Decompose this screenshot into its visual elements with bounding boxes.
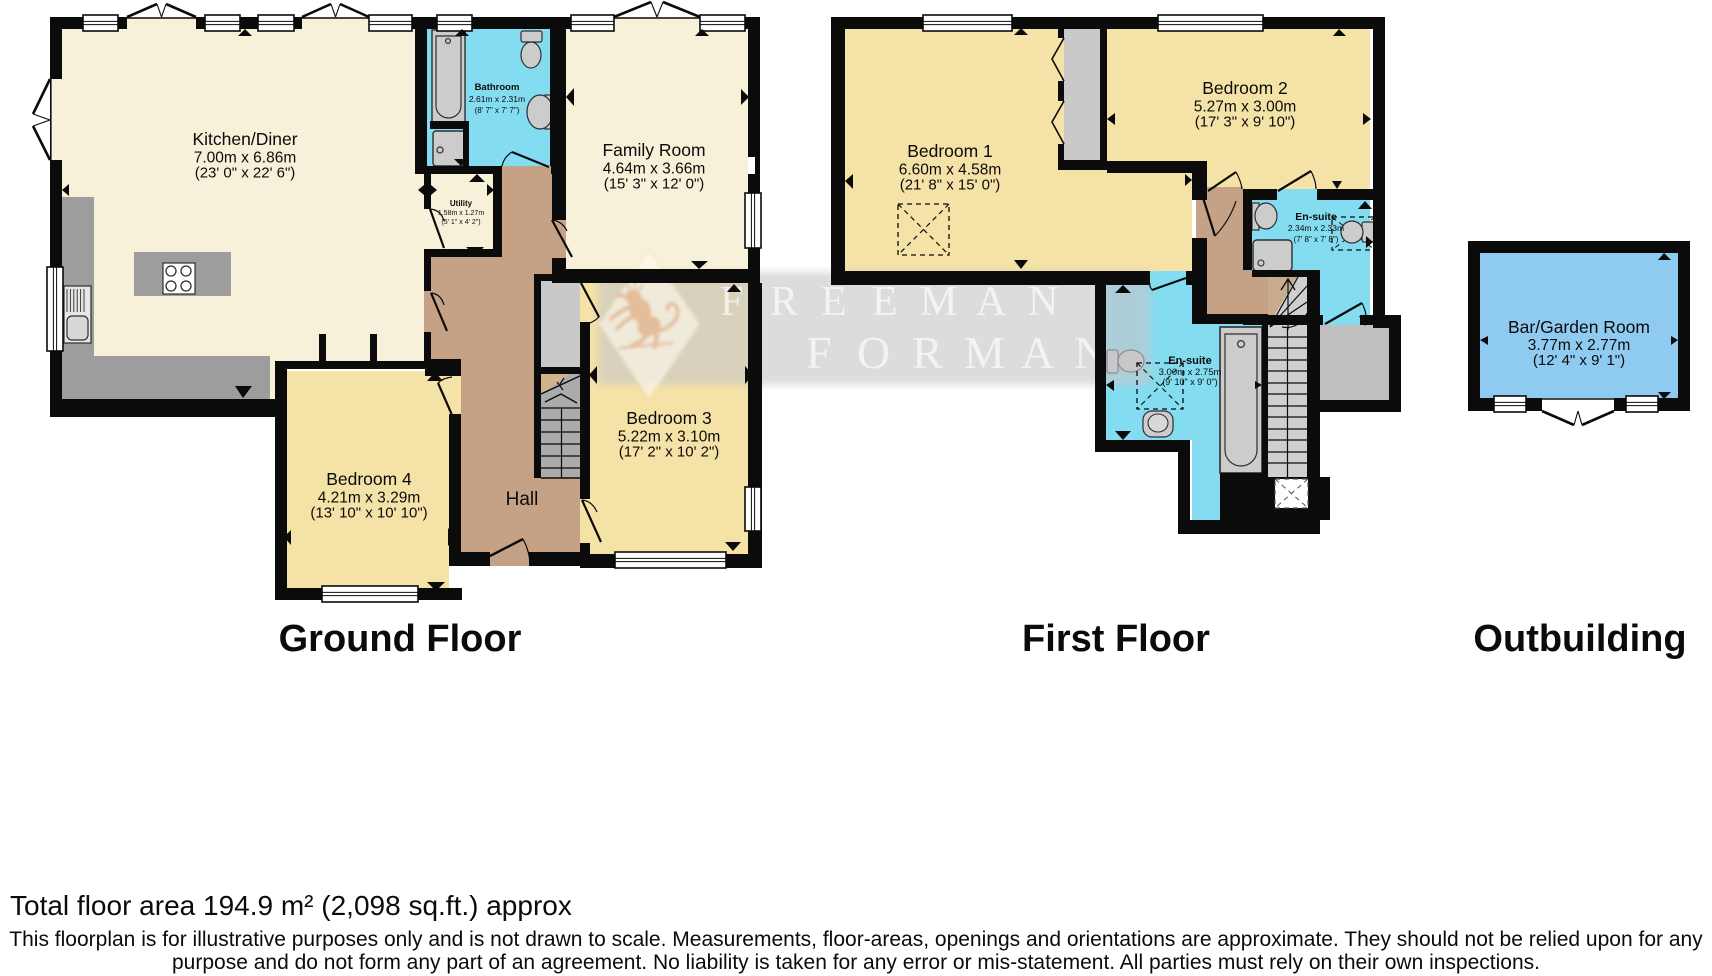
svg-text:purpose and do not form any pa: purpose and do not form any part of an a… bbox=[172, 951, 1540, 974]
svg-text:O: O bbox=[857, 327, 890, 378]
svg-text:Outbuilding: Outbuilding bbox=[1473, 618, 1686, 660]
svg-text:En-suite: En-suite bbox=[1295, 211, 1337, 223]
svg-text:E: E bbox=[872, 279, 898, 325]
svg-text:Kitchen/Diner: Kitchen/Diner bbox=[192, 129, 297, 149]
svg-text:E: E bbox=[821, 279, 847, 325]
svg-text:Bar/Garden Room: Bar/Garden Room bbox=[1508, 317, 1650, 337]
svg-text:F: F bbox=[806, 327, 832, 378]
svg-text:Bedroom 1: Bedroom 1 bbox=[907, 141, 993, 161]
svg-text:M: M bbox=[920, 279, 957, 325]
svg-text:R: R bbox=[770, 279, 798, 325]
svg-text:(13' 10" x 10' 10"): (13' 10" x 10' 10") bbox=[310, 505, 427, 522]
svg-text:Total floor area 194.9 m² (2,0: Total floor area 194.9 m² (2,098 sq.ft.)… bbox=[10, 890, 572, 921]
svg-text:(21' 8" x 15' 0"): (21' 8" x 15' 0") bbox=[900, 177, 1001, 194]
svg-text:(9' 10" x 9' 0"): (9' 10" x 9' 0") bbox=[1162, 377, 1217, 387]
svg-text:A: A bbox=[976, 279, 1007, 325]
svg-text:1.58m x 1.27m: 1.58m x 1.27m bbox=[438, 210, 484, 217]
svg-text:Bathroom: Bathroom bbox=[475, 82, 520, 93]
svg-text:R: R bbox=[912, 327, 943, 378]
svg-text:Ground Floor: Ground Floor bbox=[279, 618, 522, 660]
svg-text:Bedroom 3: Bedroom 3 bbox=[626, 408, 712, 428]
svg-text:A: A bbox=[1021, 327, 1054, 378]
svg-text:2.34m x 2.33m: 2.34m x 2.33m bbox=[1288, 223, 1344, 233]
svg-text:(5' 1" x 4' 2"): (5' 1" x 4' 2") bbox=[441, 219, 480, 226]
svg-text:First Floor: First Floor bbox=[1022, 618, 1210, 660]
svg-text:M: M bbox=[964, 327, 1005, 378]
svg-text:(23' 0" x 22' 6"): (23' 0" x 22' 6") bbox=[195, 165, 296, 182]
svg-text:En-suite: En-suite bbox=[1168, 355, 1211, 367]
svg-text:Family Room: Family Room bbox=[602, 140, 705, 160]
svg-text:(12' 4" x 9' 1"): (12' 4" x 9' 1") bbox=[1533, 352, 1625, 369]
svg-text:Bedroom 2: Bedroom 2 bbox=[1202, 78, 1288, 98]
svg-text:(8' 7" x 7' 7"): (8' 7" x 7' 7") bbox=[475, 106, 520, 115]
svg-text:Utility: Utility bbox=[450, 199, 473, 208]
svg-text:(7' 8" x 7' 8"): (7' 8" x 7' 8") bbox=[1294, 235, 1339, 244]
svg-text:F: F bbox=[720, 279, 743, 325]
svg-text:Hall: Hall bbox=[506, 489, 539, 510]
svg-text:(17' 3" x 9' 10"): (17' 3" x 9' 10") bbox=[1195, 114, 1296, 131]
svg-text:(15' 3" x 12' 0"): (15' 3" x 12' 0") bbox=[604, 176, 705, 193]
svg-text:(17' 2" x 10' 2"): (17' 2" x 10' 2") bbox=[619, 444, 720, 461]
svg-text:This floorplan is for illustra: This floorplan is for illustrative purpo… bbox=[9, 928, 1703, 951]
svg-text:Bedroom 4: Bedroom 4 bbox=[326, 469, 412, 489]
svg-text:N: N bbox=[1028, 279, 1058, 325]
svg-text:2.61m x 2.31m: 2.61m x 2.31m bbox=[469, 94, 525, 104]
